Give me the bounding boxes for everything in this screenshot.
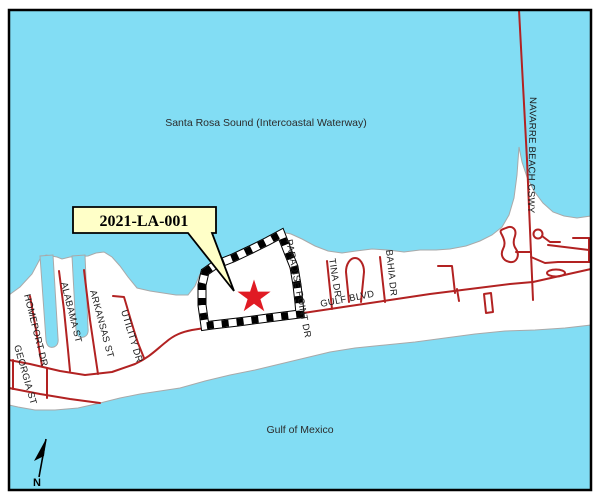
- label-navarre-beach-cswy: NAVARRE BEACH CSWY: [525, 97, 538, 214]
- label-santa-rosa-sound: Santa Rosa Sound (Intercoastal Waterway): [165, 117, 367, 129]
- location-map: 2021-LA-001 Santa Rosa Sound (Intercoast…: [0, 0, 600, 497]
- map-page: 2021-LA-001 Santa Rosa Sound (Intercoast…: [0, 0, 600, 497]
- callout-case-number: 2021-LA-001: [100, 213, 189, 230]
- label-gulf-of-mexico: Gulf of Mexico: [266, 424, 333, 436]
- north-arrow-n: N: [33, 477, 41, 489]
